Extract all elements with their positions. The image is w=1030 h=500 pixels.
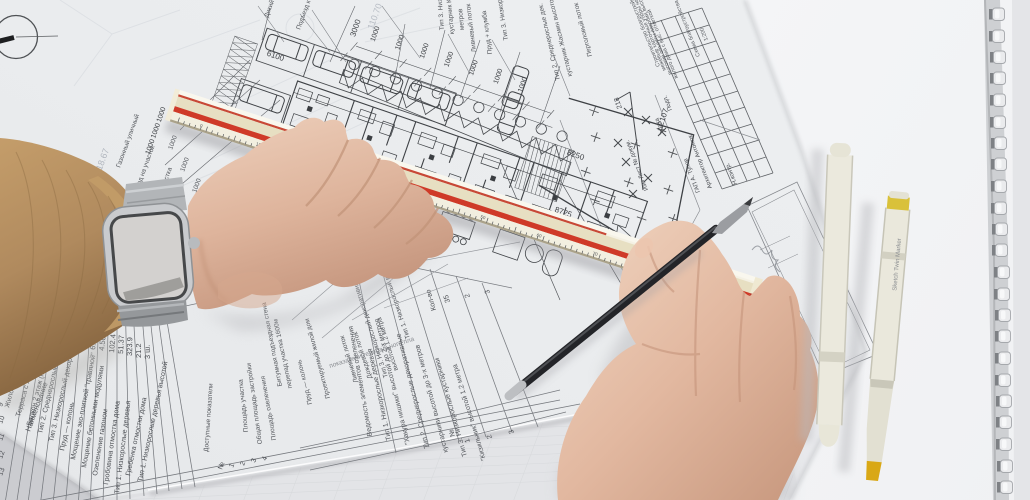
svg-text:323.9: 323.9 — [125, 337, 134, 356]
svg-text:3 ш.: 3 ш. — [143, 345, 152, 360]
